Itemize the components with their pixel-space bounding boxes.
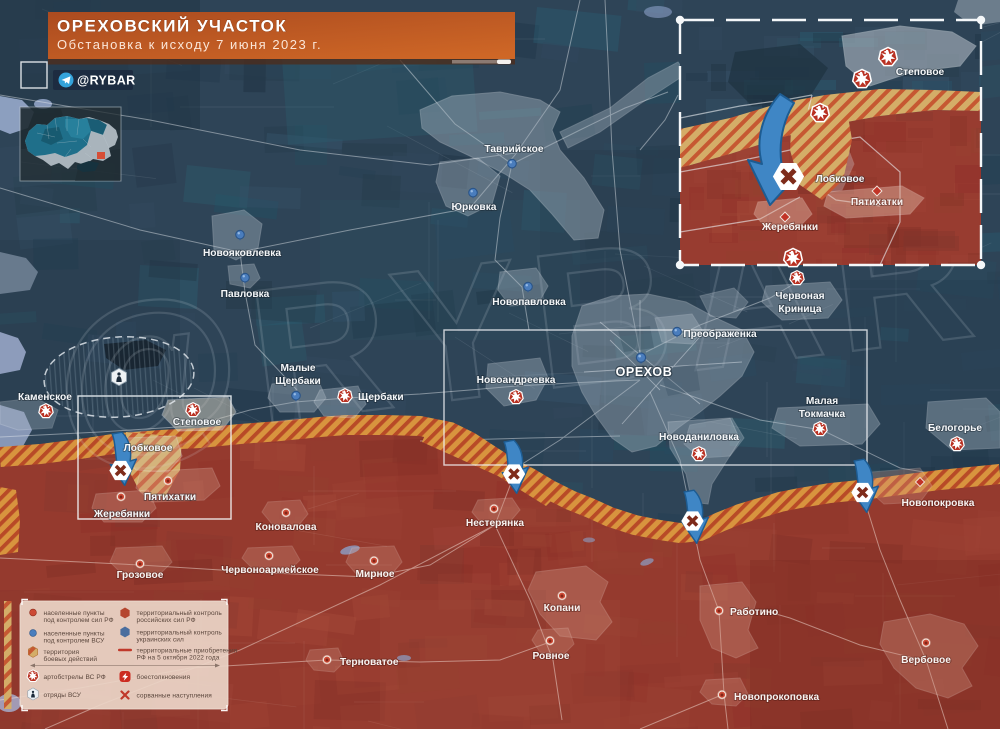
svg-text:сорванные наступления: сорванные наступления [137, 693, 213, 700]
svg-text:украинских сил: украинских сил [137, 637, 185, 644]
svg-text:ОРЕХОВСКИЙ УЧАСТОК: ОРЕХОВСКИЙ УЧАСТОК [57, 17, 287, 36]
svg-text:Степовое: Степовое [896, 67, 945, 78]
svg-text:территориальный контроль: территориальный контроль [137, 629, 223, 637]
svg-text:Степовое: Степовое [173, 417, 222, 428]
svg-text:Белогорье: Белогорье [928, 423, 982, 434]
svg-text:ОРЕХОВ: ОРЕХОВ [616, 365, 673, 379]
svg-text:Таврийское: Таврийское [484, 144, 543, 155]
svg-text:Лобковое: Лобковое [816, 173, 865, 185]
svg-text:населенные пункты: населенные пункты [44, 610, 105, 617]
svg-text:Щербаки: Щербаки [358, 391, 404, 403]
svg-text:отряды ВСУ: отряды ВСУ [44, 692, 82, 699]
svg-text:под контролем ВСУ: под контролем ВСУ [44, 638, 106, 645]
svg-text:населенные пункты: населенные пункты [44, 631, 105, 638]
svg-text:Червоноармейское: Червоноармейское [221, 565, 319, 576]
svg-text:боестолкновения: боестолкновения [137, 673, 191, 681]
svg-text:Вербовое: Вербовое [901, 654, 951, 666]
svg-text:Жеребянки: Жеребянки [93, 508, 150, 520]
svg-text:Новоданиловка: Новоданиловка [659, 432, 739, 443]
svg-text:Новоандреевка: Новоандреевка [477, 375, 556, 386]
svg-text:Жеребянки: Жеребянки [761, 221, 818, 233]
svg-text:Обстановка к исходу 7 июня 202: Обстановка к исходу 7 июня 2023 г. [57, 37, 322, 52]
svg-text:РФ на 5 октября 2022 года: РФ на 5 октября 2022 года [137, 654, 220, 662]
svg-text:Криница: Криница [778, 304, 822, 315]
svg-text:Павловка: Павловка [221, 289, 270, 300]
svg-text:Червоная: Червоная [775, 291, 824, 302]
svg-text:Коновалова: Коновалова [256, 522, 317, 533]
svg-text:Щербаки: Щербаки [275, 375, 321, 387]
svg-text:Юрковка: Юрковка [452, 202, 497, 213]
svg-text:под контролем сил РФ: под контролем сил РФ [44, 617, 114, 624]
svg-text:Лобковое: Лобковое [124, 442, 173, 454]
svg-text:Малая: Малая [806, 396, 838, 407]
svg-text:Пятихатки: Пятихатки [144, 492, 196, 503]
svg-text:Токмачка: Токмачка [799, 409, 846, 420]
svg-text:территориальный контроль: территориальный контроль [137, 609, 223, 617]
svg-text:Новояковлевка: Новояковлевка [203, 248, 281, 259]
svg-text:Новопрокоповка: Новопрокоповка [734, 692, 819, 703]
svg-text:территориальные приобретения: территориальные приобретения [137, 647, 238, 655]
svg-text:Новопавловка: Новопавловка [492, 297, 566, 308]
svg-text:Терноватое: Терноватое [340, 657, 399, 668]
svg-text:Пятихатки: Пятихатки [851, 197, 903, 208]
svg-text:Новопокровка: Новопокровка [902, 498, 975, 509]
svg-text:Каменское: Каменское [18, 392, 72, 403]
svg-text:российских сил РФ: российских сил РФ [137, 616, 196, 624]
svg-text:Ровное: Ровное [532, 651, 569, 662]
svg-text:@RYBAR: @RYBAR [77, 74, 136, 88]
svg-text:Нестерянка: Нестерянка [466, 518, 524, 529]
svg-text:Работино: Работино [730, 606, 778, 618]
svg-text:артобстрелы ВС РФ: артобстрелы ВС РФ [44, 673, 106, 681]
svg-text:боевых действий: боевых действий [44, 655, 98, 663]
svg-text:Малые: Малые [280, 363, 315, 374]
svg-text:территория: территория [44, 649, 80, 656]
svg-text:Преображенка: Преображенка [683, 328, 757, 340]
svg-text:Мирное: Мирное [355, 569, 394, 580]
svg-text:Копани: Копани [544, 603, 581, 614]
svg-text:Грозовое: Грозовое [117, 570, 164, 581]
